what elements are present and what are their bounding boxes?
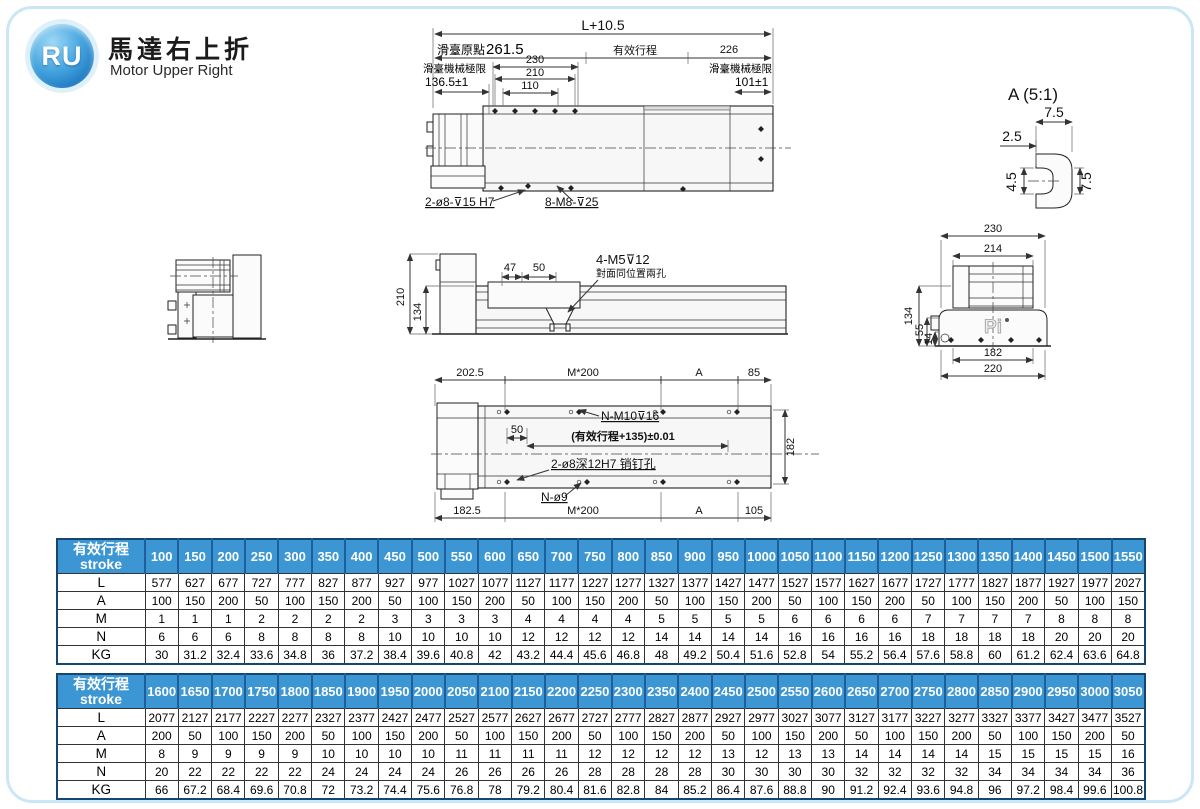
- value-cell: 26: [445, 763, 478, 781]
- row-label: N: [57, 628, 145, 646]
- value-cell: 80.4: [545, 781, 578, 800]
- dim-right: 226: [720, 44, 738, 56]
- value-cell: 73.2: [345, 781, 378, 800]
- value-cell: 16: [845, 628, 878, 646]
- stroke-value-header: 1950: [378, 674, 411, 709]
- value-cell: 50: [912, 592, 945, 610]
- value-cell: 13: [778, 745, 811, 763]
- stroke-value-header: 2100: [478, 674, 511, 709]
- value-cell: 16: [1112, 745, 1145, 763]
- value-cell: 26: [512, 763, 545, 781]
- value-cell: 2827: [645, 709, 678, 727]
- value-cell: 8: [1078, 610, 1111, 628]
- value-cell: 2277: [278, 709, 311, 727]
- value-cell: 36: [1112, 763, 1145, 781]
- stroke-value-header: 2700: [878, 674, 911, 709]
- callout-pin-holes: 2-ø8-⊽15 H7: [425, 195, 495, 209]
- value-cell: 49.2: [678, 646, 711, 665]
- dim-origin: 滑臺原點261.5: [437, 41, 524, 58]
- value-cell: 93.6: [912, 781, 945, 800]
- value-cell: 32: [912, 763, 945, 781]
- stroke-value-header: 950: [712, 539, 745, 574]
- value-cell: 3127: [845, 709, 878, 727]
- detail-a-drawing: A (5:1) 7.5 2.5 4.5 7.5: [938, 84, 1133, 216]
- value-cell: 5: [645, 610, 678, 628]
- value-cell: 150: [578, 592, 611, 610]
- value-cell: 2177: [212, 709, 245, 727]
- value-cell: 1827: [978, 574, 1011, 592]
- value-cell: 1977: [1078, 574, 1111, 592]
- dim-182-5: 182.5: [453, 505, 481, 517]
- value-cell: 30: [778, 763, 811, 781]
- stroke-value-header: 300: [278, 539, 311, 574]
- dim-2-5: 2.5: [1002, 128, 1022, 144]
- value-cell: 32: [845, 763, 878, 781]
- stroke-value-header: 1850: [312, 674, 345, 709]
- dim-210: 210: [395, 288, 407, 306]
- value-cell: 4: [612, 610, 645, 628]
- dim-214: 214: [984, 243, 1002, 255]
- value-cell: 58.8: [945, 646, 978, 665]
- value-cell: 20: [1045, 628, 1078, 646]
- value-cell: 2877: [678, 709, 711, 727]
- value-cell: 98.4: [1045, 781, 1078, 800]
- value-cell: 150: [512, 727, 545, 745]
- value-cell: 34: [978, 763, 1011, 781]
- value-cell: 727: [245, 574, 278, 592]
- value-cell: 6: [845, 610, 878, 628]
- value-cell: 200: [278, 727, 311, 745]
- value-cell: 1477: [745, 574, 778, 592]
- dim-4-5: 4.5: [1003, 172, 1019, 192]
- value-cell: 7: [912, 610, 945, 628]
- stroke-value-header: 2750: [912, 674, 945, 709]
- value-cell: 1777: [945, 574, 978, 592]
- stroke-table-1: 有效行程stroke100150200250300350400450500550…: [56, 538, 1146, 665]
- value-cell: 1627: [845, 574, 878, 592]
- callout-n-o9: N-ø9: [541, 490, 568, 504]
- value-cell: 14: [945, 745, 978, 763]
- value-cell: 85.2: [678, 781, 711, 800]
- value-cell: 2377: [345, 709, 378, 727]
- value-cell: 12: [512, 628, 545, 646]
- value-cell: 10: [378, 745, 411, 763]
- motor-side-view-drawing: [158, 243, 353, 361]
- row-label: M: [57, 745, 145, 763]
- value-cell: 50: [778, 592, 811, 610]
- value-cell: 1927: [1045, 574, 1078, 592]
- stroke-value-header: 900: [678, 539, 711, 574]
- dim-7-5-top: 7.5: [1044, 104, 1064, 120]
- value-cell: 3527: [1112, 709, 1145, 727]
- value-cell: 11: [445, 745, 478, 763]
- value-cell: 8: [1045, 610, 1078, 628]
- motor-side-view-body: [168, 255, 266, 343]
- value-cell: 12: [578, 628, 611, 646]
- value-cell: 2327: [312, 709, 345, 727]
- value-cell: 100.8: [1112, 781, 1145, 800]
- value-cell: 2: [278, 610, 311, 628]
- value-cell: 1327: [645, 574, 678, 592]
- value-cell: 877: [345, 574, 378, 592]
- value-cell: 13: [712, 745, 745, 763]
- value-cell: 28: [645, 763, 678, 781]
- value-cell: 24: [345, 763, 378, 781]
- value-cell: 677: [212, 574, 245, 592]
- stroke-value-header: 2600: [812, 674, 845, 709]
- dim-m200-bottom: M*200: [567, 505, 599, 517]
- stroke-value-header: 200: [212, 539, 245, 574]
- dim-50: 50: [533, 262, 545, 274]
- value-cell: 627: [178, 574, 211, 592]
- value-cell: 100: [945, 592, 978, 610]
- value-cell: 88.8: [778, 781, 811, 800]
- pi-brand-logo: Pi: [984, 317, 1002, 338]
- stroke-value-header: 2250: [578, 674, 611, 709]
- value-cell: 1127: [512, 574, 545, 592]
- value-cell: 10: [412, 628, 445, 646]
- stroke-value-header: 250: [245, 539, 278, 574]
- stroke-value-header: 2050: [445, 674, 478, 709]
- dim-47: 47: [504, 262, 516, 274]
- stroke-value-header: 1100: [812, 539, 845, 574]
- value-cell: 12: [678, 745, 711, 763]
- value-cell: 6: [212, 628, 245, 646]
- stroke-value-header: 2000: [412, 674, 445, 709]
- stroke-value-header: 2200: [545, 674, 578, 709]
- stroke-value-header: 500: [412, 539, 445, 574]
- value-cell: 8: [1112, 610, 1145, 628]
- value-cell: 34: [1045, 763, 1078, 781]
- value-cell: 6: [178, 628, 211, 646]
- value-cell: 20: [145, 763, 178, 781]
- stroke-value-header: 1250: [912, 539, 945, 574]
- value-cell: 6: [878, 610, 911, 628]
- dim-230: 230: [984, 223, 1002, 235]
- value-cell: 40.8: [445, 646, 478, 665]
- ru-logo-icon: RU: [30, 24, 94, 88]
- limit-left-zh: 滑臺機械極限: [423, 62, 486, 75]
- value-cell: 30: [812, 763, 845, 781]
- stroke-value-header: 2350: [645, 674, 678, 709]
- stroke-value-header: 1700: [212, 674, 245, 709]
- value-cell: 8: [245, 628, 278, 646]
- value-cell: 18: [978, 628, 1011, 646]
- value-cell: 11: [478, 745, 511, 763]
- value-cell: 2527: [445, 709, 478, 727]
- detail-a-profile: [1028, 154, 1072, 208]
- callout-note: 對面同位置兩孔: [596, 267, 666, 280]
- value-cell: 10: [478, 628, 511, 646]
- value-cell: 2427: [378, 709, 411, 727]
- dim-202-5: 202.5: [456, 367, 484, 379]
- value-cell: 87.6: [745, 781, 778, 800]
- dim-14: 14: [923, 333, 935, 345]
- value-cell: 50: [1045, 592, 1078, 610]
- value-cell: 2077: [145, 709, 178, 727]
- dim-stroke-135: (有效行程+135)±0.01: [571, 429, 675, 443]
- value-cell: 100: [478, 727, 511, 745]
- value-cell: 2627: [512, 709, 545, 727]
- value-cell: 67.2: [178, 781, 211, 800]
- value-cell: 60: [978, 646, 1011, 665]
- dim-a-bottom: A: [695, 505, 703, 517]
- value-cell: 32: [945, 763, 978, 781]
- value-cell: 6: [145, 628, 178, 646]
- value-cell: 3: [378, 610, 411, 628]
- dim-85: 85: [748, 367, 760, 379]
- detail-a-dimensions: 7.5 2.5 4.5 7.5: [1000, 104, 1094, 194]
- stroke-table-2: 有效行程stroke160016501700175018001850190019…: [56, 673, 1146, 800]
- value-cell: 2127: [178, 709, 211, 727]
- value-cell: 14: [878, 745, 911, 763]
- value-cell: 150: [245, 727, 278, 745]
- value-cell: 84: [645, 781, 678, 800]
- stroke-value-header: 3050: [1112, 674, 1145, 709]
- value-cell: 1177: [545, 574, 578, 592]
- value-cell: 37.2: [345, 646, 378, 665]
- value-cell: 100: [745, 727, 778, 745]
- value-cell: 90: [812, 781, 845, 800]
- value-cell: 24: [412, 763, 445, 781]
- value-cell: 6: [778, 610, 811, 628]
- value-cell: 5: [745, 610, 778, 628]
- value-cell: 10: [345, 745, 378, 763]
- value-cell: 100: [345, 727, 378, 745]
- value-cell: 9: [178, 745, 211, 763]
- value-cell: 150: [378, 727, 411, 745]
- value-cell: 200: [478, 592, 511, 610]
- value-cell: 86.4: [712, 781, 745, 800]
- value-cell: 2777: [612, 709, 645, 727]
- value-cell: 69.6: [245, 781, 278, 800]
- value-cell: 32: [878, 763, 911, 781]
- value-cell: 50: [378, 592, 411, 610]
- value-cell: 200: [545, 727, 578, 745]
- value-cell: 100: [212, 727, 245, 745]
- value-cell: 11: [512, 745, 545, 763]
- value-cell: 76.8: [445, 781, 478, 800]
- dim-105: 105: [745, 505, 763, 517]
- limit-right-val: 101±1: [735, 75, 769, 89]
- stroke-value-header: 700: [545, 539, 578, 574]
- value-cell: 30: [145, 646, 178, 665]
- value-cell: 12: [745, 745, 778, 763]
- value-cell: 8: [312, 628, 345, 646]
- value-cell: 1: [145, 610, 178, 628]
- dim-overall: L+10.5: [581, 17, 624, 33]
- dim-stroke-zh: 有效行程: [613, 43, 657, 57]
- value-cell: 24: [378, 763, 411, 781]
- value-cell: 44.4: [545, 646, 578, 665]
- value-cell: 150: [912, 727, 945, 745]
- value-cell: 1227: [578, 574, 611, 592]
- stroke-value-header: 2850: [978, 674, 1011, 709]
- stroke-value-header: 1300: [945, 539, 978, 574]
- stroke-value-header: 1600: [145, 674, 178, 709]
- stroke-value-header: 1550: [1112, 539, 1145, 574]
- value-cell: 99.6: [1078, 781, 1111, 800]
- value-cell: 8: [278, 628, 311, 646]
- value-cell: 11: [545, 745, 578, 763]
- value-cell: 2477: [412, 709, 445, 727]
- callout-nm10: N-M10⊽16: [601, 409, 659, 423]
- value-cell: 150: [645, 727, 678, 745]
- value-cell: 81.6: [578, 781, 611, 800]
- value-cell: 5: [678, 610, 711, 628]
- value-cell: 3: [445, 610, 478, 628]
- bottom-view-drawing: 202.5 M*200 A 85 N-M10⊽16 50 (有效行程+135)±…: [423, 366, 831, 534]
- dim-a-top: A: [695, 367, 703, 379]
- value-cell: 50: [1112, 727, 1145, 745]
- value-cell: 200: [945, 727, 978, 745]
- value-cell: 150: [445, 592, 478, 610]
- value-cell: 50.4: [712, 646, 745, 665]
- value-cell: 3327: [978, 709, 1011, 727]
- value-cell: 150: [778, 727, 811, 745]
- value-cell: 100: [545, 592, 578, 610]
- value-cell: 75.6: [412, 781, 445, 800]
- value-cell: 6: [812, 610, 845, 628]
- stroke-value-header: 450: [378, 539, 411, 574]
- value-cell: 63.6: [1078, 646, 1111, 665]
- value-cell: 200: [878, 592, 911, 610]
- value-cell: 150: [978, 592, 1011, 610]
- dim-134: 134: [903, 307, 915, 325]
- value-cell: 4: [578, 610, 611, 628]
- value-cell: 79.2: [512, 781, 545, 800]
- value-cell: 200: [412, 727, 445, 745]
- dim-50: 50: [511, 424, 523, 436]
- stroke-value-header: 1350: [978, 539, 1011, 574]
- row-label: KG: [57, 781, 145, 800]
- value-cell: 78: [478, 781, 511, 800]
- value-cell: 34.8: [278, 646, 311, 665]
- stroke-value-header: 150: [178, 539, 211, 574]
- value-cell: 22: [278, 763, 311, 781]
- limit-left-val: 136.5±1: [425, 75, 469, 89]
- value-cell: 12: [612, 745, 645, 763]
- value-cell: 72: [312, 781, 345, 800]
- stroke-value-header: 1650: [178, 674, 211, 709]
- value-cell: 12: [645, 745, 678, 763]
- callout-pin-holes: 2-ø8深12H7 销钉孔: [551, 457, 656, 471]
- stroke-value-header: 3000: [1078, 674, 1111, 709]
- datasheet-page: RU 馬達右上折 Motor Upper Right L+10.5 滑臺原點26…: [0, 0, 1200, 809]
- stroke-value-header: 1450: [1045, 539, 1078, 574]
- dim-110: 110: [521, 80, 539, 92]
- value-cell: 34: [1012, 763, 1045, 781]
- value-cell: 4: [512, 610, 545, 628]
- value-cell: 150: [178, 592, 211, 610]
- value-cell: 50: [445, 727, 478, 745]
- value-cell: 12: [612, 628, 645, 646]
- value-cell: 57.6: [912, 646, 945, 665]
- stroke-value-header: 2900: [1012, 674, 1045, 709]
- value-cell: 1427: [712, 574, 745, 592]
- value-cell: 24: [312, 763, 345, 781]
- value-cell: 3: [412, 610, 445, 628]
- value-cell: 50: [845, 727, 878, 745]
- value-cell: 48: [645, 646, 678, 665]
- value-cell: 7: [1012, 610, 1045, 628]
- stroke-table: 有效行程stroke160016501700175018001850190019…: [56, 673, 1146, 800]
- dim-182-right: 182: [785, 438, 797, 456]
- stroke-value-header: 350: [312, 539, 345, 574]
- value-cell: 200: [612, 592, 645, 610]
- stroke-value-header: 1050: [778, 539, 811, 574]
- row-label: A: [57, 592, 145, 610]
- value-cell: 97.2: [1012, 781, 1045, 800]
- value-cell: 3427: [1045, 709, 1078, 727]
- value-cell: 18: [945, 628, 978, 646]
- top-view-body: [425, 106, 791, 192]
- value-cell: 3227: [912, 709, 945, 727]
- value-cell: 16: [812, 628, 845, 646]
- value-cell: 2727: [578, 709, 611, 727]
- value-cell: 150: [1045, 727, 1078, 745]
- callout-4m5: 4-M5⊽12: [596, 252, 650, 267]
- value-cell: 200: [345, 592, 378, 610]
- value-cell: 14: [912, 745, 945, 763]
- value-cell: 45.6: [578, 646, 611, 665]
- value-cell: 96: [978, 781, 1011, 800]
- value-cell: 100: [278, 592, 311, 610]
- stroke-value-header: 1750: [245, 674, 278, 709]
- value-cell: 2677: [545, 709, 578, 727]
- stroke-table: 有效行程stroke100150200250300350400450500550…: [56, 538, 1146, 665]
- value-cell: 15: [1012, 745, 1045, 763]
- dim-230: 230: [526, 54, 544, 66]
- stroke-value-header: 2550: [778, 674, 811, 709]
- value-cell: 50: [712, 727, 745, 745]
- value-cell: 14: [645, 628, 678, 646]
- row-label: N: [57, 763, 145, 781]
- value-cell: 3027: [778, 709, 811, 727]
- value-cell: 577: [145, 574, 178, 592]
- value-cell: 39.6: [412, 646, 445, 665]
- dim-182: 182: [984, 347, 1002, 359]
- value-cell: 7: [978, 610, 1011, 628]
- value-cell: 14: [845, 745, 878, 763]
- value-cell: 3077: [812, 709, 845, 727]
- stroke-value-header: 1900: [345, 674, 378, 709]
- value-cell: 15: [1045, 745, 1078, 763]
- stroke-value-header: 1150: [845, 539, 878, 574]
- value-cell: 50: [645, 592, 678, 610]
- value-cell: 50: [512, 592, 545, 610]
- dim-7-5-right: 7.5: [1078, 172, 1094, 192]
- dim-134: 134: [412, 303, 424, 321]
- value-cell: 20: [1078, 628, 1111, 646]
- value-cell: 1: [178, 610, 211, 628]
- value-cell: 1677: [878, 574, 911, 592]
- stroke-value-header: 650: [512, 539, 545, 574]
- dim-m200-top: M*200: [567, 367, 599, 379]
- logo-text: RU: [42, 41, 83, 72]
- page-title-zh: 馬達右上折: [108, 30, 253, 66]
- value-cell: 100: [412, 592, 445, 610]
- value-cell: 54: [812, 646, 845, 665]
- value-cell: 2227: [245, 709, 278, 727]
- value-cell: 20: [1112, 628, 1145, 646]
- value-cell: 8: [345, 628, 378, 646]
- value-cell: 12: [545, 628, 578, 646]
- value-cell: 200: [1012, 592, 1045, 610]
- value-cell: 52.8: [778, 646, 811, 665]
- value-cell: 9: [245, 745, 278, 763]
- value-cell: 977: [412, 574, 445, 592]
